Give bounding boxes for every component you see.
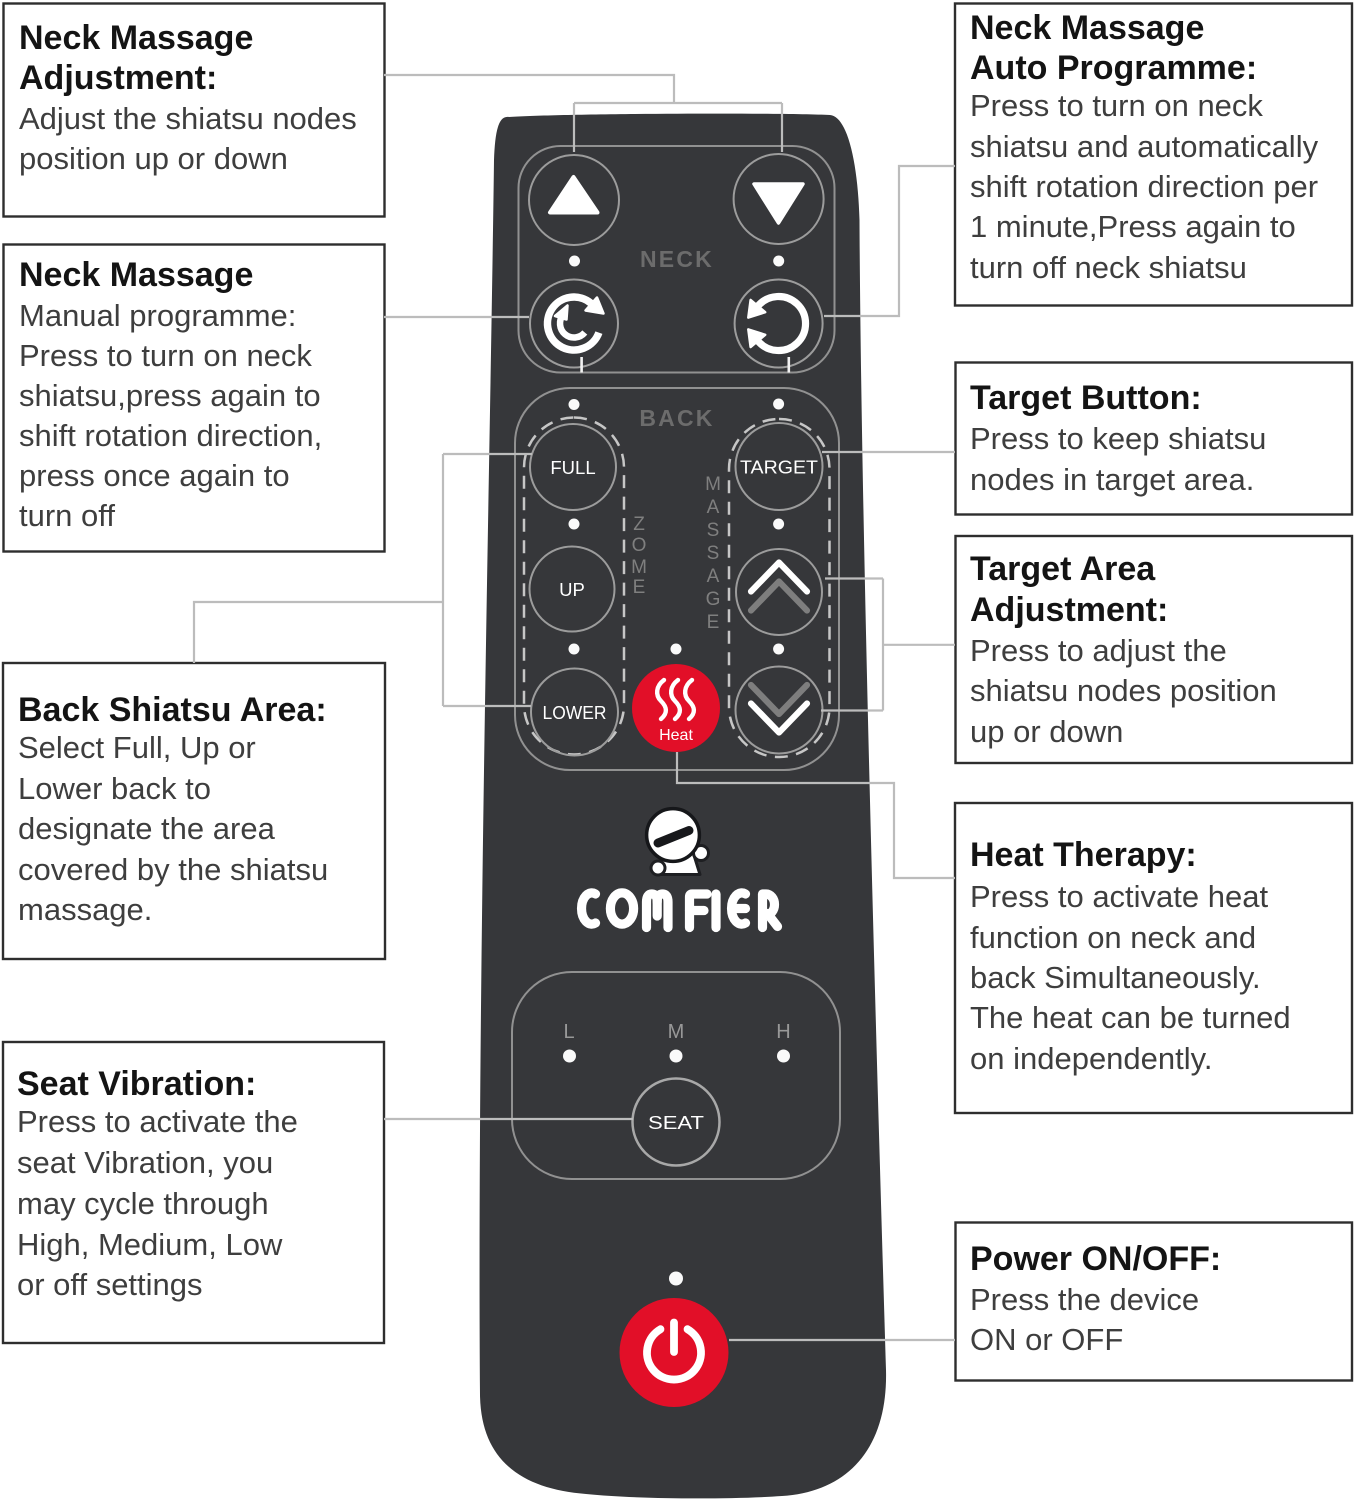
svg-text:Manual programme:: Manual programme: bbox=[19, 298, 296, 333]
svg-text:ON or OFF: ON or OFF bbox=[970, 1322, 1123, 1357]
svg-text:NECK: NECK bbox=[640, 246, 714, 272]
svg-text:The heat can be turned: The heat can be turned bbox=[970, 1000, 1291, 1035]
svg-text:turn off neck shiatsu: turn off neck shiatsu bbox=[970, 250, 1247, 285]
svg-text:covered by the shiatsu: covered by the shiatsu bbox=[18, 852, 328, 887]
svg-text:E: E bbox=[633, 577, 646, 598]
svg-text:designate the area: designate the area bbox=[18, 811, 276, 846]
svg-text:Press to activate heat: Press to activate heat bbox=[970, 879, 1268, 914]
svg-text:shiatsu nodes position: shiatsu nodes position bbox=[970, 673, 1277, 708]
svg-text:shift rotation direction per: shift rotation direction per bbox=[970, 169, 1318, 204]
svg-text:Heat: Heat bbox=[659, 727, 693, 744]
svg-text:M: M bbox=[631, 557, 647, 578]
svg-text:M: M bbox=[668, 1021, 685, 1043]
svg-text:Heat Therapy:: Heat Therapy: bbox=[970, 836, 1197, 874]
svg-text:UP: UP bbox=[559, 579, 585, 600]
svg-text:A: A bbox=[707, 497, 720, 518]
svg-text:Press to turn on neck: Press to turn on neck bbox=[19, 338, 312, 373]
svg-text:M: M bbox=[705, 474, 721, 495]
svg-text:shiatsu,press again to: shiatsu,press again to bbox=[19, 378, 321, 413]
svg-text:Press to adjust the: Press to adjust the bbox=[970, 633, 1227, 668]
svg-text:Target Button:: Target Button: bbox=[970, 379, 1202, 417]
svg-text:Back Shiatsu Area:: Back Shiatsu Area: bbox=[18, 691, 327, 729]
svg-text:seat Vibration, you: seat Vibration, you bbox=[17, 1145, 273, 1180]
svg-text:High, Medium, Low: High, Medium, Low bbox=[17, 1227, 283, 1262]
svg-text:back Simultaneously.: back Simultaneously. bbox=[970, 960, 1261, 995]
svg-text:TARGET: TARGET bbox=[740, 457, 818, 478]
svg-text:massage.: massage. bbox=[18, 892, 152, 927]
svg-text:Power ON/OFF:: Power ON/OFF: bbox=[970, 1240, 1221, 1278]
svg-text:shiatsu and automatically: shiatsu and automatically bbox=[970, 129, 1319, 164]
svg-text:BACK: BACK bbox=[639, 405, 714, 431]
svg-text:Press to activate the: Press to activate the bbox=[17, 1104, 298, 1139]
svg-text:Target Area: Target Area bbox=[970, 550, 1156, 588]
svg-text:up or down: up or down bbox=[970, 714, 1123, 749]
svg-text:Select Full, Up or: Select Full, Up or bbox=[18, 730, 256, 765]
svg-text:S: S bbox=[707, 543, 720, 564]
svg-text:O: O bbox=[632, 535, 647, 556]
svg-text:on independently.: on independently. bbox=[970, 1041, 1212, 1076]
svg-text:may cycle through: may cycle through bbox=[17, 1186, 269, 1221]
svg-text:G: G bbox=[706, 589, 721, 610]
svg-text:Lower back to: Lower back to bbox=[18, 771, 211, 806]
svg-text:Press to keep shiatsu: Press to keep shiatsu bbox=[970, 421, 1266, 456]
svg-text:Auto Programme:: Auto Programme: bbox=[970, 49, 1257, 87]
svg-text:E: E bbox=[707, 612, 720, 633]
svg-text:Neck Massage: Neck Massage bbox=[19, 256, 253, 294]
svg-text:Neck Massage: Neck Massage bbox=[19, 19, 253, 57]
svg-text:function on neck and: function on neck and bbox=[970, 920, 1256, 955]
svg-text:Seat Vibration:: Seat Vibration: bbox=[17, 1065, 256, 1103]
svg-text:Press to turn on neck: Press to turn on neck bbox=[970, 88, 1263, 123]
svg-text:SEAT: SEAT bbox=[648, 1112, 704, 1133]
svg-text:H: H bbox=[776, 1021, 790, 1043]
svg-text:position up or down: position up or down bbox=[19, 141, 288, 176]
svg-text:Adjustment:: Adjustment: bbox=[19, 59, 217, 97]
svg-text:press once again to: press once again to bbox=[19, 458, 290, 493]
svg-text:A: A bbox=[707, 566, 720, 587]
svg-text:Press the device: Press the device bbox=[970, 1282, 1199, 1317]
svg-text:Neck Massage: Neck Massage bbox=[970, 9, 1204, 47]
svg-text:or off settings: or off settings bbox=[17, 1267, 203, 1302]
svg-text:Z: Z bbox=[633, 514, 645, 535]
svg-text:L: L bbox=[563, 1021, 574, 1043]
svg-text:LOWER: LOWER bbox=[543, 702, 607, 723]
svg-text:S: S bbox=[707, 520, 720, 541]
svg-text:FULL: FULL bbox=[550, 457, 595, 478]
svg-text:Adjustment:: Adjustment: bbox=[970, 591, 1168, 629]
svg-text:nodes in target area.: nodes in target area. bbox=[970, 462, 1254, 497]
svg-text:Adjust the shiatsu nodes: Adjust the shiatsu nodes bbox=[19, 101, 357, 136]
svg-text:shift rotation direction,: shift rotation direction, bbox=[19, 418, 322, 453]
svg-text:turn off: turn off bbox=[19, 498, 115, 533]
svg-text:1 minute,Press again to: 1 minute,Press again to bbox=[970, 209, 1296, 244]
